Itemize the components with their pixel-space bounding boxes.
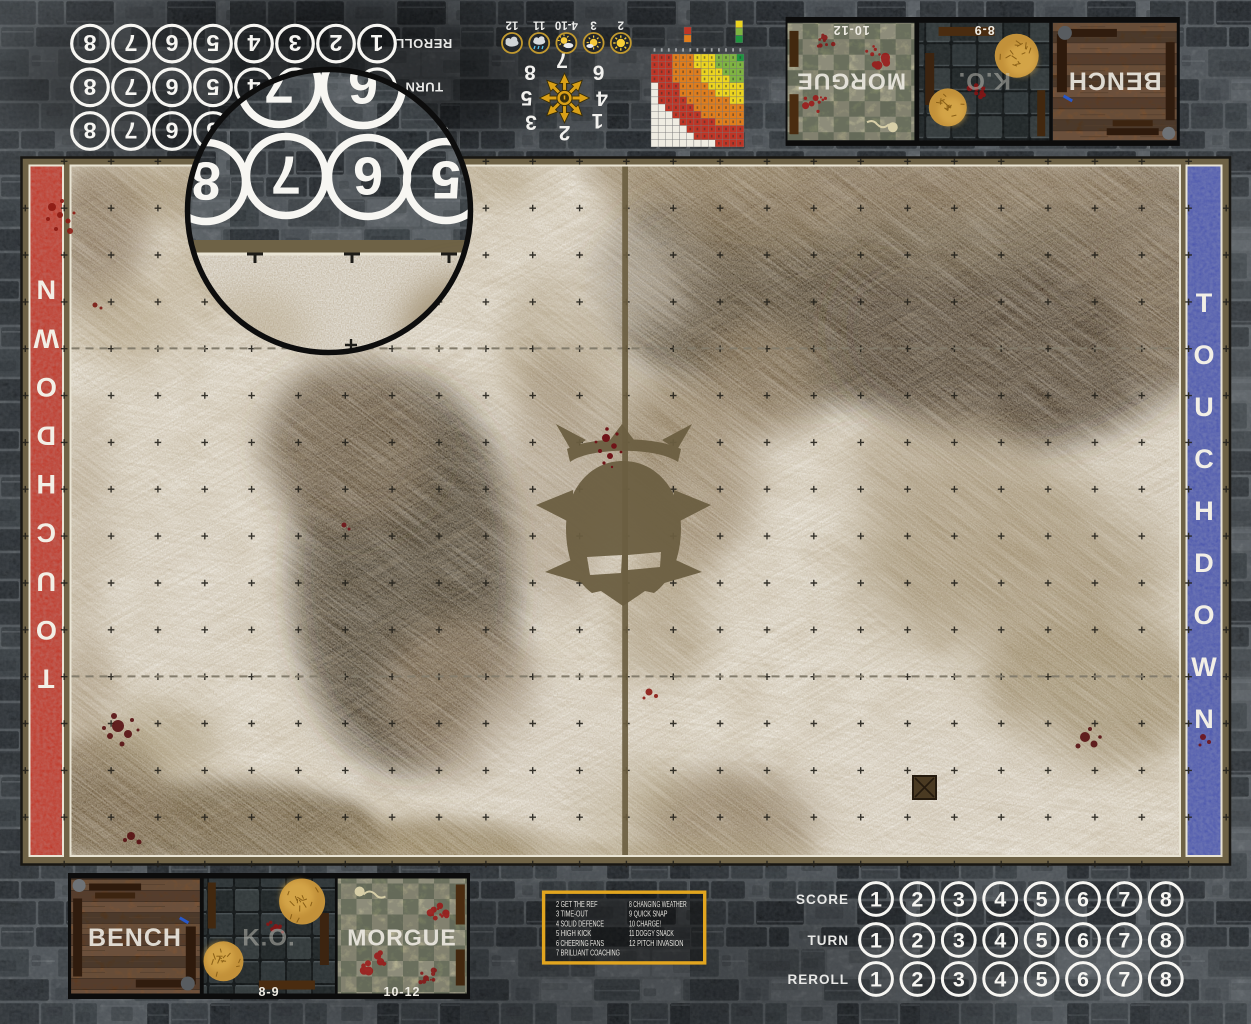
svg-text:K.O.: K.O. — [242, 925, 295, 952]
svg-text:W: W — [1191, 652, 1217, 682]
svg-text:MORGUE: MORGUE — [796, 68, 906, 94]
svg-text:3: 3 — [590, 19, 596, 31]
svg-text:5: 5 — [520, 86, 532, 109]
svg-text:1: 1 — [370, 30, 383, 56]
svg-text:W: W — [33, 323, 59, 353]
svg-text:4: 4 — [994, 929, 1006, 953]
svg-text:4: 4 — [247, 30, 260, 56]
svg-text:5: 5 — [1036, 968, 1048, 992]
svg-text:C: C — [37, 518, 57, 548]
svg-text:7: 7 — [1118, 888, 1130, 912]
svg-text:3: 3 — [288, 30, 301, 56]
svg-text:O: O — [36, 615, 57, 645]
svg-text:6 CHEERING FANS: 6 CHEERING FANS — [556, 939, 604, 948]
svg-text:6: 6 — [1077, 968, 1089, 992]
svg-text:11 DOGGY SNACK: 11 DOGGY SNACK — [629, 929, 674, 938]
svg-text:8: 8 — [1160, 888, 1172, 912]
svg-text:3 TIME-OUT: 3 TIME-OUT — [556, 910, 588, 919]
svg-text:1: 1 — [870, 888, 882, 912]
svg-text:4: 4 — [596, 87, 608, 110]
svg-text:MORGUE: MORGUE — [347, 924, 457, 950]
svg-text:3: 3 — [953, 968, 965, 992]
svg-text:N: N — [37, 275, 57, 305]
svg-text:5: 5 — [1036, 888, 1048, 912]
svg-text:2: 2 — [329, 30, 342, 56]
svg-text:2: 2 — [559, 121, 571, 144]
svg-text:2: 2 — [911, 888, 923, 912]
svg-text:1: 1 — [870, 968, 882, 992]
svg-text:11: 11 — [533, 19, 546, 31]
svg-text:12: 12 — [506, 19, 519, 31]
svg-text:4: 4 — [994, 888, 1006, 912]
svg-text:3: 3 — [525, 111, 537, 134]
svg-text:2: 2 — [618, 19, 624, 31]
svg-text:5: 5 — [431, 150, 461, 210]
svg-text:7: 7 — [1118, 968, 1130, 992]
svg-text:5: 5 — [206, 74, 219, 100]
svg-text:7: 7 — [556, 49, 568, 72]
svg-text:7: 7 — [124, 30, 137, 56]
svg-text:K.O.: K.O. — [958, 67, 1011, 94]
svg-text:8: 8 — [1160, 968, 1172, 992]
svg-text:TURN: TURN — [808, 933, 850, 948]
svg-text:8: 8 — [83, 30, 96, 56]
svg-text:10 CHARGE!: 10 CHARGE! — [629, 919, 661, 928]
svg-text:8: 8 — [83, 74, 96, 100]
svg-text:1: 1 — [591, 109, 603, 132]
svg-text:6: 6 — [165, 30, 178, 56]
svg-text:8 CHANGING WEATHER: 8 CHANGING WEATHER — [629, 900, 687, 909]
svg-text:7: 7 — [1118, 929, 1130, 953]
svg-text:4-10: 4-10 — [555, 19, 578, 31]
svg-text:7: 7 — [124, 74, 137, 100]
svg-text:7 BRILLIANT COACHING: 7 BRILLIANT COACHING — [556, 949, 620, 958]
svg-text:7: 7 — [124, 118, 137, 144]
svg-text:BENCH: BENCH — [1068, 67, 1162, 95]
svg-text:8: 8 — [524, 61, 536, 84]
svg-text:D: D — [37, 421, 57, 451]
svg-text:C: C — [1194, 444, 1214, 474]
svg-text:6: 6 — [593, 61, 605, 84]
svg-text:12 PITCH INVASION: 12 PITCH INVASION — [629, 939, 683, 948]
svg-text:10-12: 10-12 — [833, 23, 870, 37]
svg-text:U: U — [1194, 392, 1214, 422]
svg-text:7: 7 — [271, 145, 301, 205]
svg-text:O: O — [1193, 340, 1214, 370]
svg-text:REROLL: REROLL — [788, 972, 850, 987]
svg-text:5 HIGH KICK: 5 HIGH KICK — [556, 929, 592, 938]
svg-text:2: 2 — [911, 968, 923, 992]
svg-text:T: T — [38, 664, 55, 694]
svg-text:H: H — [37, 469, 57, 499]
svg-text:10-12: 10-12 — [384, 985, 421, 999]
svg-text:BENCH: BENCH — [88, 924, 182, 952]
svg-text:O: O — [1193, 600, 1214, 630]
svg-text:6: 6 — [165, 118, 178, 144]
svg-text:2 GET THE REF: 2 GET THE REF — [556, 900, 598, 909]
svg-text:1: 1 — [870, 929, 882, 953]
svg-text:6: 6 — [1077, 888, 1089, 912]
svg-text:6: 6 — [353, 146, 383, 206]
svg-text:6: 6 — [1077, 929, 1089, 953]
svg-text:6: 6 — [165, 74, 178, 100]
svg-text:8-9: 8-9 — [974, 23, 995, 37]
svg-text:3: 3 — [953, 888, 965, 912]
svg-text:9 QUICK SNAP: 9 QUICK SNAP — [629, 910, 668, 919]
svg-text:H: H — [1194, 496, 1214, 526]
svg-text:4 SOLID DEFENCE: 4 SOLID DEFENCE — [556, 919, 604, 928]
svg-text:4: 4 — [994, 968, 1006, 992]
svg-text:N: N — [1194, 704, 1214, 734]
svg-text:2: 2 — [911, 929, 923, 953]
svg-text:5: 5 — [206, 30, 219, 56]
svg-text:3: 3 — [953, 929, 965, 953]
svg-text:5: 5 — [1036, 929, 1048, 953]
svg-text:T: T — [1196, 288, 1213, 318]
svg-text:U: U — [37, 566, 57, 596]
svg-text:D: D — [1194, 548, 1214, 578]
svg-text:8: 8 — [1160, 929, 1172, 953]
svg-text:REROLL: REROLL — [396, 36, 452, 51]
svg-text:O: O — [36, 372, 57, 402]
svg-text:SCORE: SCORE — [796, 892, 849, 907]
svg-text:8-9: 8-9 — [258, 985, 279, 999]
svg-text:8: 8 — [83, 118, 96, 144]
